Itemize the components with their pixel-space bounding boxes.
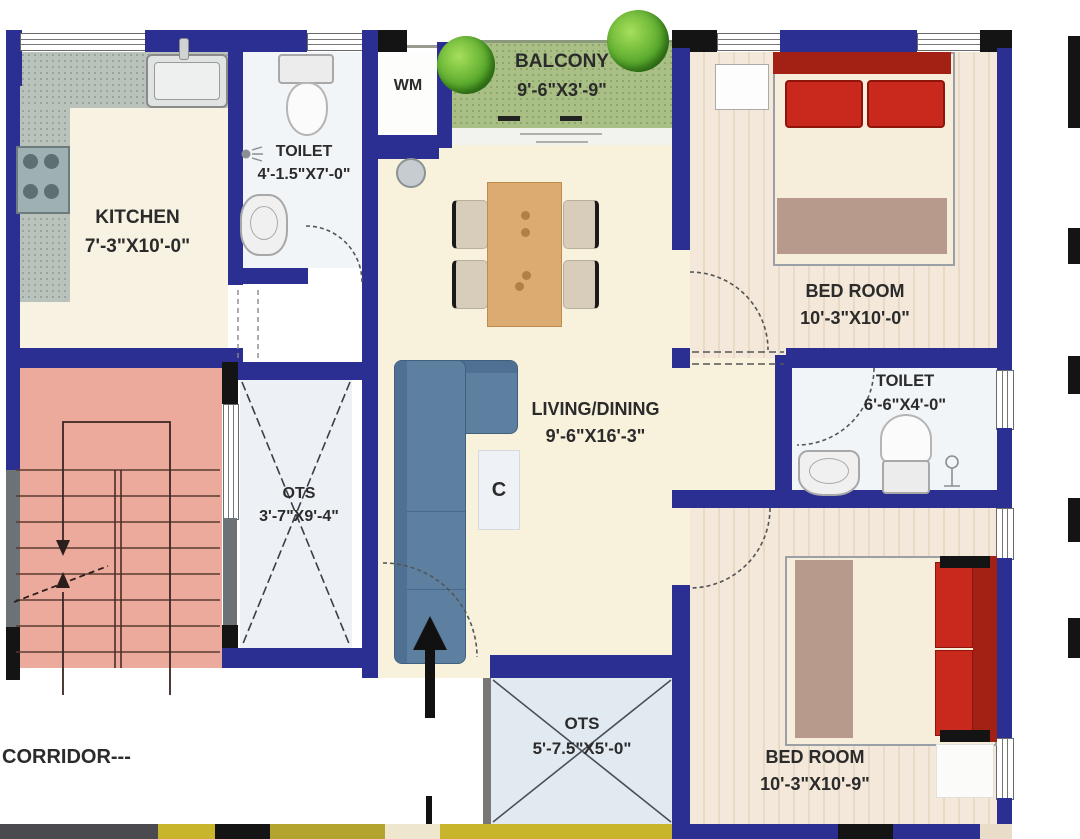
bottom-band-segment <box>215 824 270 839</box>
table-plate <box>521 228 530 237</box>
toilet1-vent-window <box>307 33 364 51</box>
wall-right-mid1 <box>997 428 1012 508</box>
toilet2-washbasin <box>798 450 860 496</box>
wall-right-mid2 <box>997 558 1012 738</box>
bed-headboard <box>773 52 951 74</box>
bedroom2-bed <box>785 556 997 746</box>
dining-table <box>487 182 562 327</box>
wall-bedroom2-left <box>672 585 690 824</box>
bedroom2-label: BED ROOM 10'-3"X10'-9" <box>690 744 940 798</box>
wall-right-lower <box>997 798 1012 824</box>
toilet2-wc-bowl <box>880 414 932 464</box>
kitchen-sink <box>146 54 228 108</box>
wall-ots1-bottom <box>222 648 368 668</box>
living-label: LIVING/DINING 9'-6"X16'-3" <box>488 396 703 450</box>
bed-pillow <box>785 80 863 128</box>
bottom-band-segment <box>893 824 980 839</box>
stove-burner <box>23 154 38 169</box>
wall-toilet2-top <box>786 348 997 368</box>
edge-mark <box>1068 498 1080 542</box>
toilet1-washbasin <box>240 194 288 256</box>
toilet1-basin-inner <box>250 206 278 240</box>
floor-plan: C <box>0 0 1080 839</box>
wall-stair-ots1 <box>223 518 237 625</box>
wall-left-mid <box>6 470 20 627</box>
sofa-seam <box>407 589 465 590</box>
living-passage-floor <box>672 250 690 350</box>
wall-top-2 <box>780 30 917 52</box>
dining-chair <box>452 200 488 249</box>
sofa-seam <box>407 511 465 512</box>
bedroom2-doorway-floor <box>672 508 690 585</box>
bedroom1-window-right <box>917 33 982 51</box>
sofa-back <box>395 361 407 663</box>
toilet1-wc-tank <box>278 54 334 84</box>
table-plate <box>515 282 524 291</box>
ots1-label: OTS 3'-7"X9'-4" <box>240 482 358 528</box>
ots1-window <box>223 404 239 520</box>
sofa-l-side <box>394 360 466 664</box>
stove-burner <box>23 184 38 199</box>
wall-living-bottom <box>490 655 677 678</box>
wall-top-1 <box>145 30 307 52</box>
bottom-band-segment <box>838 824 893 839</box>
wall-toilet1-bottom <box>228 268 308 284</box>
bedroom2-window-top <box>996 508 1014 560</box>
bed-corner-mark <box>940 730 990 742</box>
wall-ots2-left <box>483 678 491 824</box>
kitchen-faucet <box>179 38 189 60</box>
stove-burner <box>44 154 59 169</box>
bottom-band-segment <box>980 824 1012 839</box>
toilet2-label: TOILET 6'-6"X4'-0" <box>825 370 985 418</box>
bed-pillow <box>867 80 945 128</box>
wall-toilet2-left <box>775 355 792 508</box>
kitchen-sink-basin <box>154 62 220 100</box>
kitchen-label: KITCHEN 7'-3"X10'-0" <box>45 204 230 261</box>
table-plate <box>521 211 530 220</box>
dining-chair <box>563 200 599 249</box>
balcony-label: BALCONY 9'-6"X3'-9" <box>462 48 662 104</box>
wall-kitchen-bottom <box>6 348 243 368</box>
wall-left-lower-pier <box>6 627 20 680</box>
wall-wm-bottom <box>378 135 439 159</box>
edge-mark <box>1068 36 1080 128</box>
wm-label: WM <box>380 74 436 98</box>
kitchen-window <box>20 33 147 51</box>
wall-ots1-top <box>222 362 368 380</box>
bedroom1-bed <box>773 52 955 266</box>
bed-blanket <box>777 198 947 254</box>
bed-blanket <box>795 560 853 738</box>
toilet2-basin-inner <box>809 458 849 484</box>
stove-burner <box>44 184 59 199</box>
bedroom2-rug <box>936 744 994 798</box>
table-plate <box>522 271 531 280</box>
wall-right-upper <box>997 48 1012 370</box>
bottom-band-segment <box>385 824 440 839</box>
edge-mark <box>1068 618 1080 658</box>
stair-floor <box>14 368 222 668</box>
wall-main-vertical <box>362 30 378 678</box>
cupboard-box: C <box>478 450 520 530</box>
bedroom1-side-table <box>715 64 769 110</box>
bedroom1-window-left <box>717 33 782 51</box>
toilet2-wc-tank <box>882 460 930 494</box>
ots2-label: OTS 5'-7.5"X5'-0" <box>498 712 666 761</box>
corridor-label: CORRIDOR--- <box>0 742 182 772</box>
toilet1-wc-bowl <box>286 82 328 136</box>
bed-headboard <box>973 556 997 742</box>
bed-pillow <box>935 650 973 736</box>
bottom-band-segment <box>270 824 385 839</box>
dining-chair <box>563 260 599 309</box>
pier-ots1-top <box>222 362 238 404</box>
bottom-band-segment <box>0 824 158 839</box>
wall-bedroom1-left <box>672 48 690 250</box>
bed-corner-mark <box>940 556 990 568</box>
wall-bedroom1-bottom-stub <box>672 348 690 368</box>
toilet1-label: TOILET 4'-1.5"X7'-0" <box>236 140 372 186</box>
edge-mark <box>1068 228 1080 264</box>
cupboard-label: C <box>492 479 506 502</box>
faucet-icon <box>396 158 426 188</box>
bottom-band-segment <box>158 824 215 839</box>
bottom-band-segment <box>440 824 672 839</box>
bottom-band-segment <box>672 824 838 839</box>
wall-left-upper <box>6 30 20 470</box>
dining-chair <box>452 260 488 309</box>
edge-mark <box>1068 356 1080 394</box>
bed-pillow <box>935 562 973 648</box>
toilet2-window <box>996 370 1014 430</box>
bedroom2-window-bottom <box>996 738 1014 800</box>
bedroom1-label: BED ROOM 10'-3"X10'-0" <box>730 278 980 332</box>
